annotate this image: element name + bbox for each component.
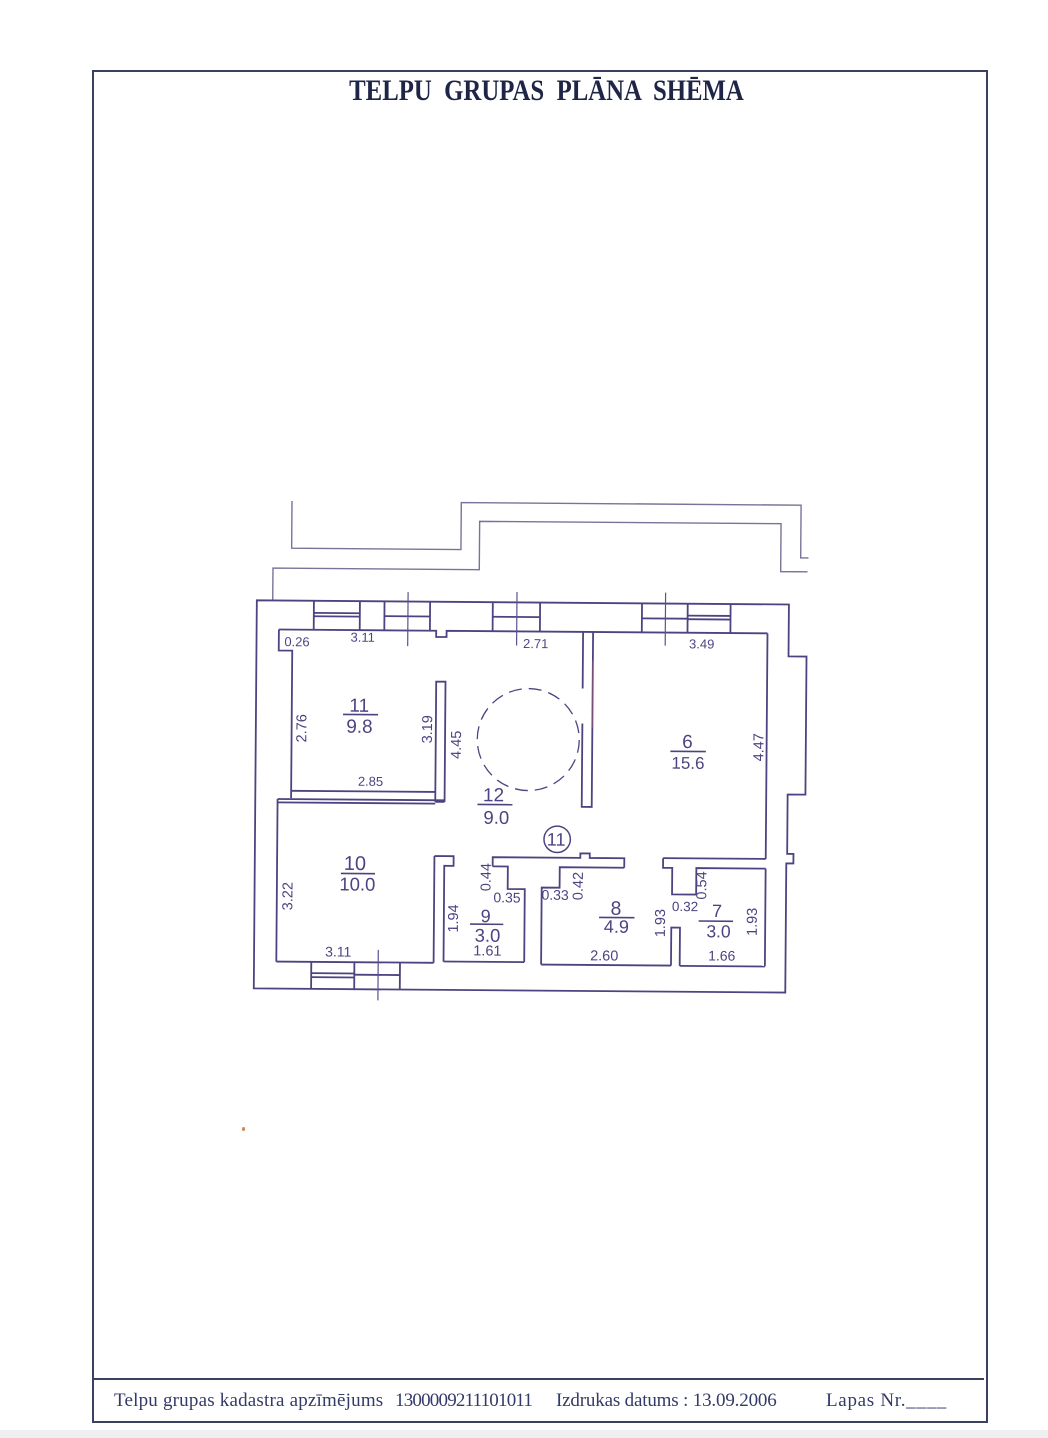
svg-text:0.32: 0.32 — [672, 899, 698, 914]
svg-text:1.93: 1.93 — [745, 908, 761, 936]
svg-text:3.19: 3.19 — [420, 715, 436, 743]
svg-text:3.11: 3.11 — [351, 630, 375, 645]
svg-text:3.0: 3.0 — [475, 925, 501, 946]
svg-text:12: 12 — [483, 785, 504, 806]
svg-text:15.6: 15.6 — [671, 754, 704, 773]
svg-text:4.9: 4.9 — [604, 917, 629, 937]
svg-text:4.47: 4.47 — [751, 733, 767, 761]
svg-text:0.33: 0.33 — [541, 887, 569, 903]
svg-text:10: 10 — [344, 853, 366, 875]
svg-text:9.8: 9.8 — [346, 717, 373, 738]
svg-text:3.49: 3.49 — [689, 636, 714, 651]
svg-text:6: 6 — [682, 732, 693, 753]
svg-text:0.54: 0.54 — [694, 871, 710, 899]
svg-text:10.0: 10.0 — [339, 873, 375, 894]
svg-text:0.42: 0.42 — [571, 872, 587, 900]
svg-text:11: 11 — [349, 696, 369, 717]
svg-text:11: 11 — [547, 830, 566, 850]
svg-text:2.85: 2.85 — [358, 774, 383, 789]
svg-text:7: 7 — [712, 901, 722, 921]
svg-text:1.93: 1.93 — [653, 909, 669, 937]
svg-text:1.66: 1.66 — [708, 947, 736, 963]
svg-text:3.22: 3.22 — [280, 882, 296, 910]
svg-text:0.44: 0.44 — [479, 863, 495, 891]
svg-text:4.45: 4.45 — [449, 731, 465, 759]
svg-text:2.71: 2.71 — [523, 636, 548, 651]
svg-text:1.61: 1.61 — [473, 943, 501, 959]
svg-text:2.76: 2.76 — [294, 714, 310, 742]
svg-text:2.60: 2.60 — [590, 948, 618, 964]
svg-text:9: 9 — [481, 906, 491, 926]
svg-text:9.0: 9.0 — [483, 807, 509, 828]
svg-text:3.0: 3.0 — [706, 921, 731, 941]
svg-text:0.35: 0.35 — [493, 889, 521, 905]
svg-text:3.11: 3.11 — [325, 943, 352, 959]
svg-text:1.94: 1.94 — [446, 904, 462, 932]
svg-text:0.26: 0.26 — [284, 634, 309, 649]
